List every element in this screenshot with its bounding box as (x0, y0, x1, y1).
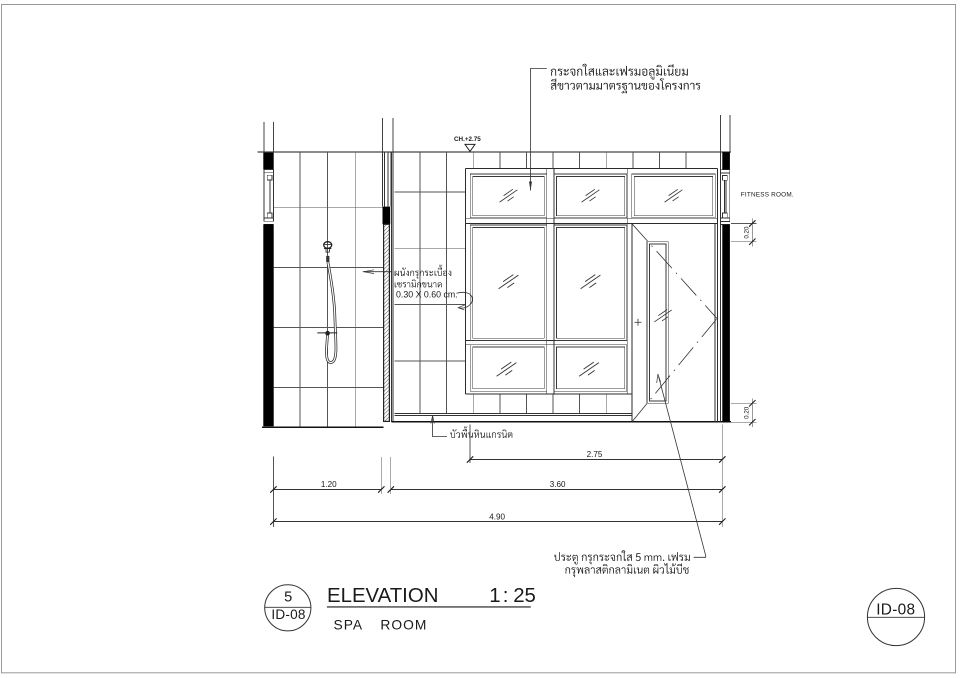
svg-text:25: 25 (513, 585, 536, 607)
svg-text:2.75: 2.75 (587, 450, 603, 459)
svg-text:0.20: 0.20 (743, 406, 750, 419)
svg-text::: : (503, 585, 509, 607)
svg-text:ROOM: ROOM (380, 618, 427, 633)
svg-text:0.30 X 0.60 cm.: 0.30 X 0.60 cm. (396, 290, 458, 300)
svg-text:3.60: 3.60 (550, 480, 566, 489)
svg-text:CH.+2.75: CH.+2.75 (454, 136, 481, 143)
svg-text:5: 5 (284, 590, 292, 606)
svg-text:ID-08: ID-08 (271, 607, 305, 622)
svg-text:SPA: SPA (334, 618, 364, 633)
svg-text:1.20: 1.20 (321, 480, 337, 489)
svg-text:FITNESS ROOM.: FITNESS ROOM. (741, 192, 794, 199)
svg-text:0.20: 0.20 (743, 226, 750, 239)
svg-text:4.90: 4.90 (489, 512, 505, 521)
svg-text:1: 1 (489, 585, 500, 607)
svg-text:ID-08: ID-08 (876, 601, 915, 618)
svg-text:ELEVATION: ELEVATION (327, 585, 438, 607)
